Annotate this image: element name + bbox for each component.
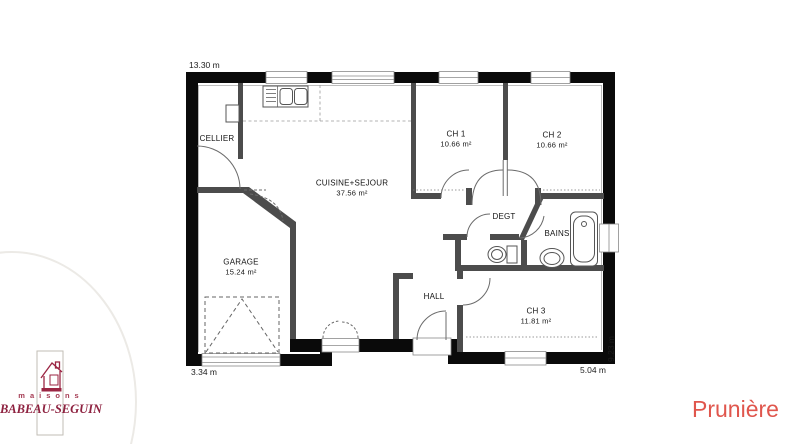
openings <box>202 72 619 367</box>
room-name: CUISINE+SEJOUR <box>316 179 388 189</box>
room-label-cuisine-sejour: CUISINE+SEJOUR 37.56 m² <box>316 179 388 198</box>
wall-ch3-west-lower <box>457 305 463 352</box>
floor-plan-page: CELLIER CUISINE+SEJOUR 37.56 m² CH 1 10.… <box>0 0 800 444</box>
wall-ch3-west-upper <box>457 271 463 279</box>
floor-plan-drawing <box>0 0 800 444</box>
wall-garage-diagonal <box>243 187 296 228</box>
jamb-ch1 <box>466 188 472 205</box>
wall-west <box>186 72 198 366</box>
room-label-bains: BAINS <box>544 229 569 239</box>
room-label-ch3: CH 3 11.81 m² <box>521 307 552 326</box>
garage-door-symbol <box>205 297 279 353</box>
room-label-garage: GARAGE 15.24 m² <box>223 258 258 277</box>
degt-door-leaves <box>503 160 507 196</box>
dim-depth-right: 9.23 m <box>606 336 616 362</box>
bathtub <box>571 212 598 266</box>
door-swings <box>197 146 544 340</box>
kitchen-sink <box>263 86 308 107</box>
wall-east <box>603 72 615 364</box>
room-area: 11.81 m² <box>521 316 552 325</box>
room-label-hall: HALL <box>424 292 445 302</box>
brand-word-maisons: maisons <box>18 391 83 400</box>
dim-width-top: 13.30 m <box>189 60 220 70</box>
room-area: 37.56 m² <box>316 188 388 197</box>
dim-ch3-width: 5.04 m <box>580 365 606 375</box>
washbasin <box>540 249 564 268</box>
wall-bains-diagonal <box>518 193 546 240</box>
wall-hall-cap <box>393 273 413 279</box>
water-heater <box>226 105 239 122</box>
room-label-ch2: CH 2 10.66 m² <box>536 131 567 150</box>
french-door-arc-right <box>342 322 358 338</box>
dim-garage-width: 3.34 m <box>191 367 217 377</box>
window-bay-sejour <box>332 72 394 84</box>
room-name: CH 3 <box>521 307 552 317</box>
room-name: CELLIER <box>200 134 235 144</box>
garage-door-opening <box>202 354 280 367</box>
room-name: DEGT <box>492 212 515 222</box>
toilet <box>488 246 517 263</box>
room-name: CH 2 <box>536 131 567 141</box>
french-door-arc-left <box>323 321 340 338</box>
ch1-door-arc <box>441 170 469 198</box>
wall-hall-west <box>393 279 399 339</box>
degt-dome-left <box>472 170 503 205</box>
wc-door-arc <box>467 214 490 237</box>
entrance-door <box>413 338 451 355</box>
wall-wc-west <box>455 234 461 265</box>
room-area: 10.66 m² <box>536 140 567 149</box>
wall-garage-north <box>197 187 243 193</box>
room-label-degt: DEGT <box>492 212 515 222</box>
room-label-ch1: CH 1 10.66 m² <box>440 130 471 149</box>
wall-sejour-ch1 <box>411 83 416 193</box>
room-area: 10.66 m² <box>440 139 471 148</box>
wall-ch1-south <box>411 193 441 199</box>
wall-garage-east <box>290 222 296 339</box>
room-name: HALL <box>424 292 445 302</box>
room-name: BAINS <box>544 229 569 239</box>
room-name: CH 1 <box>440 130 471 140</box>
plan-title: Prunière <box>692 396 779 423</box>
wall-ch2-south <box>541 193 604 199</box>
brand-name-babeau-seguin: BABEAU-SEGUIN <box>0 402 102 417</box>
room-name: GARAGE <box>223 258 258 268</box>
ch3-door-arc <box>463 278 490 305</box>
room-area: 15.24 m² <box>223 267 258 276</box>
wall-wc-north-right <box>490 234 519 240</box>
wall-wc-bains <box>521 240 527 265</box>
cellier-door-arc <box>197 146 240 189</box>
room-label-cellier: CELLIER <box>200 134 235 144</box>
entrance-door-arc <box>417 311 446 340</box>
wall-ch1-ch2 <box>503 83 508 160</box>
